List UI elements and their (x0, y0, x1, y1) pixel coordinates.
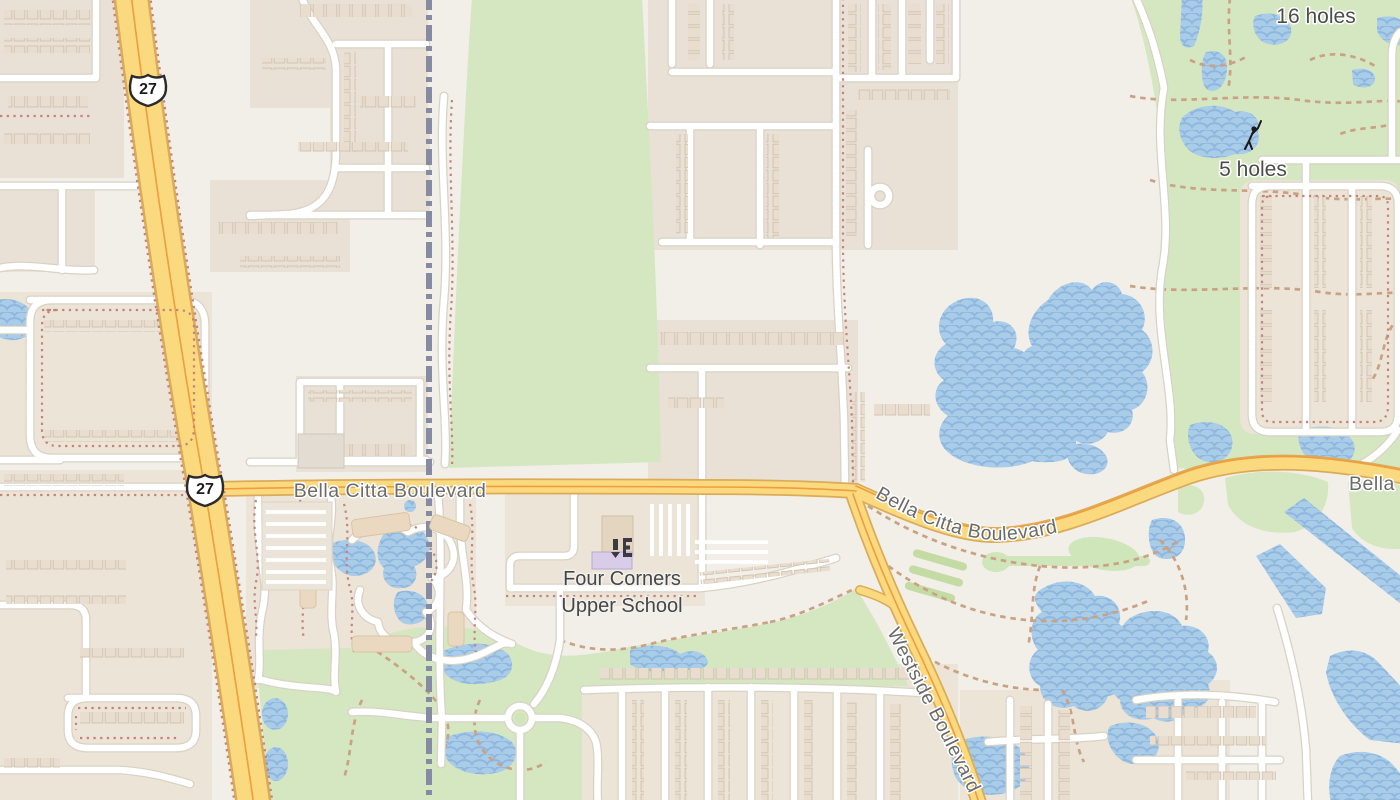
map-viewport[interactable]: 27 27 Bella Citta Boulevard Bella Citta … (0, 0, 1400, 800)
road-label-bella-citta-west: Bella Citta Boulevard (294, 480, 487, 502)
pond (262, 698, 288, 730)
shield-number: 27 (139, 81, 157, 98)
place-label-school-line2: Upper School (561, 595, 682, 617)
five-holes-lake (1179, 106, 1259, 158)
shield-number: 27 (196, 481, 214, 498)
roundabout-island (515, 713, 525, 723)
place-label-16-holes: 16 holes (1276, 5, 1355, 28)
place-label-school-line1: Four Corners (563, 568, 681, 590)
road-label-bella-partial: Bella (1349, 473, 1395, 495)
grass-field (449, 0, 661, 468)
place-label-5-holes: 5 holes (1219, 158, 1287, 181)
map-canvas[interactable]: 27 27 Bella Citta Boulevard Bella Citta … (0, 0, 1400, 800)
